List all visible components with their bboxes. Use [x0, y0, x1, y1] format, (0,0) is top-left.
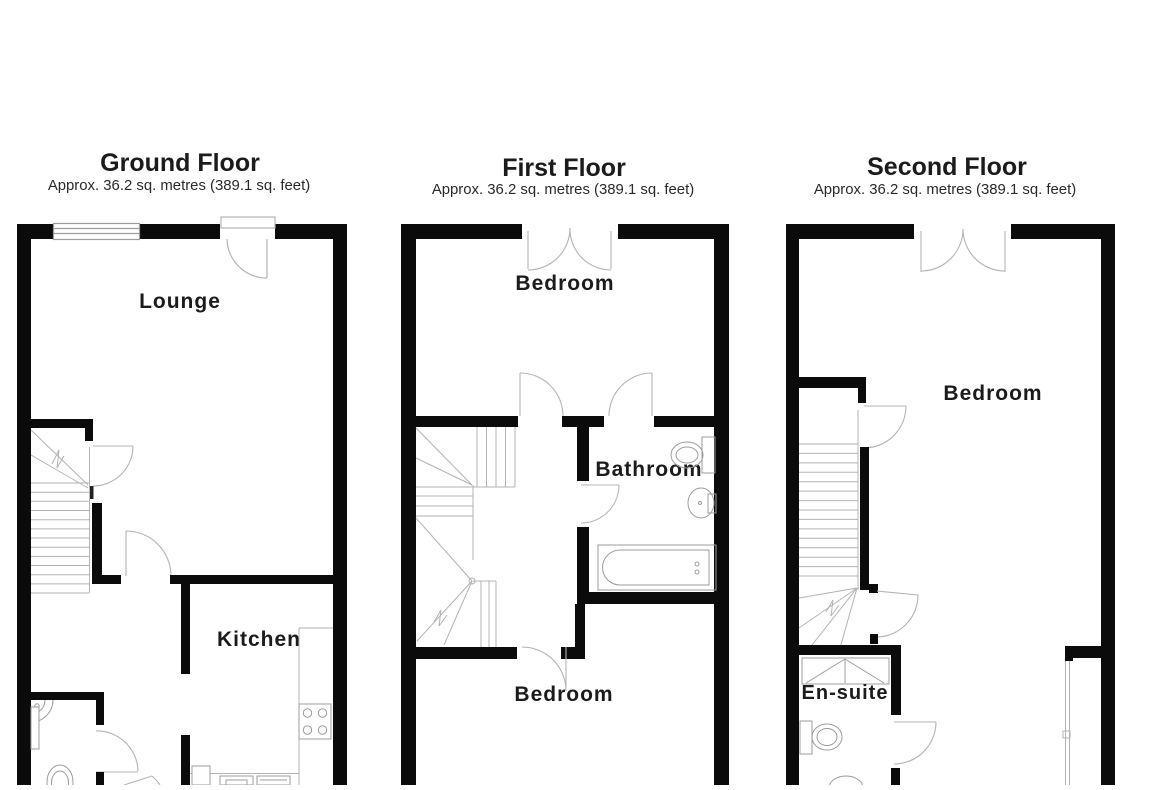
svg-text:Bathroom: Bathroom	[595, 458, 702, 481]
svg-text:Kitchen: Kitchen	[217, 628, 301, 651]
svg-text:En-suite: En-suite	[802, 682, 889, 704]
svg-text:Lounge: Lounge	[139, 290, 221, 313]
svg-text:Approx. 36.2 sq. metres (389.1: Approx. 36.2 sq. metres (389.1 sq. feet)	[48, 178, 310, 194]
svg-text:Approx. 36.2 sq. metres (389.1: Approx. 36.2 sq. metres (389.1 sq. feet)	[814, 182, 1076, 198]
svg-text:Second Floor: Second Floor	[867, 153, 1027, 181]
svg-text:Bedroom: Bedroom	[943, 382, 1042, 405]
svg-text:Approx. 36.2 sq. metres (389.1: Approx. 36.2 sq. metres (389.1 sq. feet)	[432, 182, 694, 198]
svg-text:First Floor: First Floor	[502, 154, 626, 182]
svg-text:Bedroom: Bedroom	[515, 272, 614, 295]
svg-text:Ground Floor: Ground Floor	[100, 149, 260, 177]
svg-text:Bedroom: Bedroom	[514, 683, 613, 706]
